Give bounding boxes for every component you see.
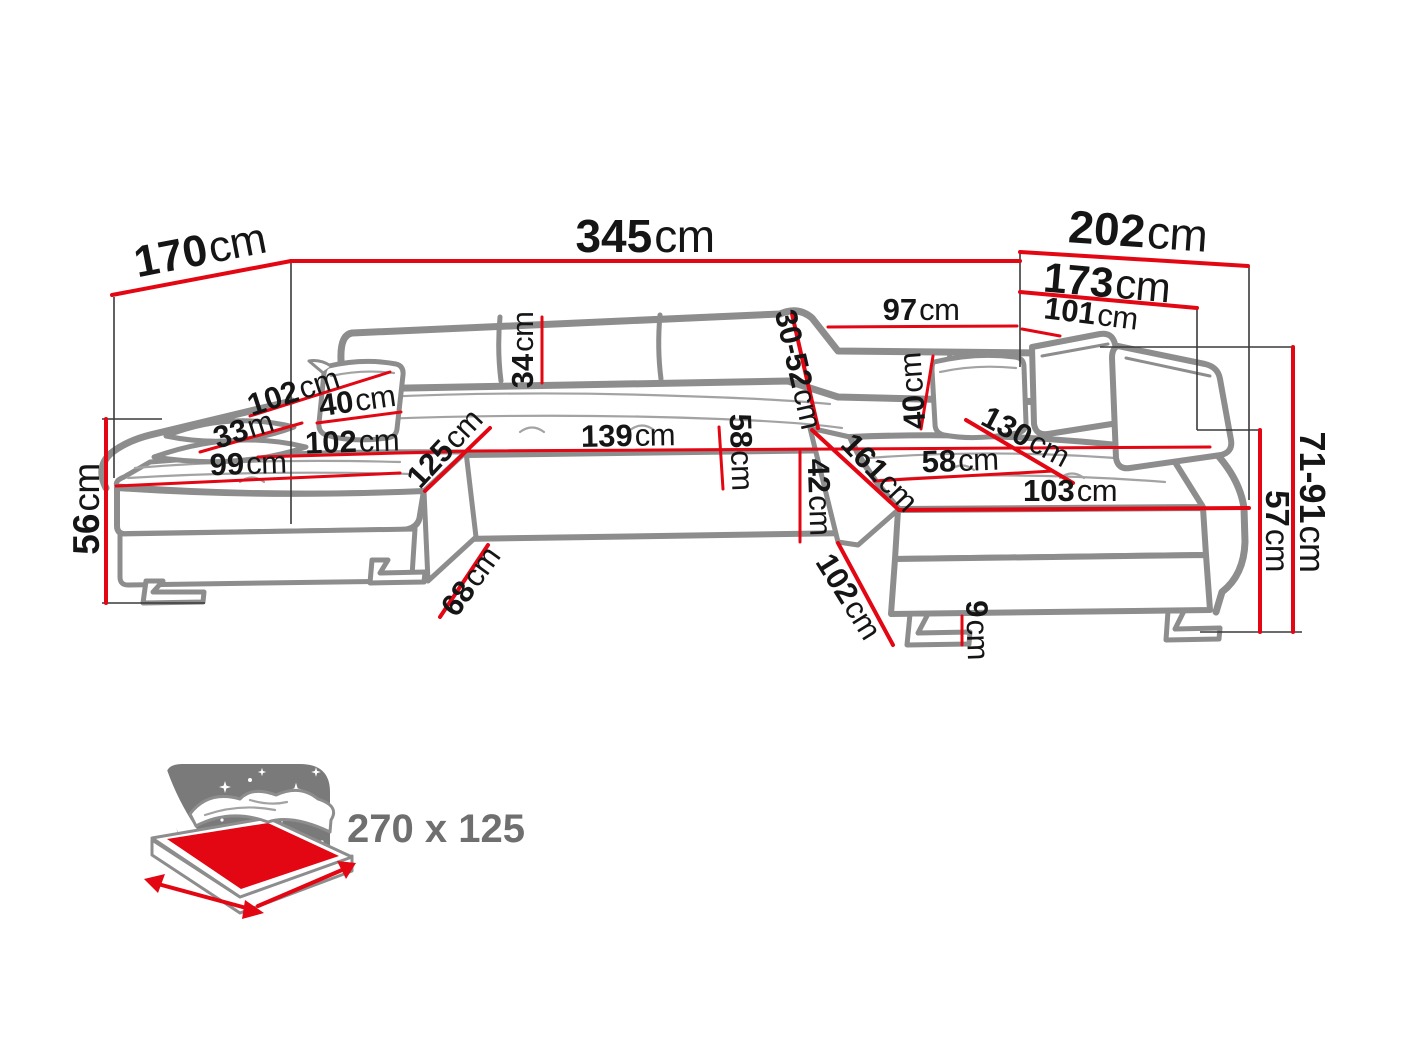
dim-label-backrest-height: 34cm: [505, 312, 540, 389]
dim-line-back-right-b: [1022, 329, 1060, 336]
backrest-seam: [659, 315, 661, 379]
dim-label-seat-mid-width: 139cm: [581, 417, 676, 454]
dim-label-well-right: 102cm: [809, 547, 889, 645]
dim-label-back-right-a: 97cm: [883, 292, 960, 327]
dim-line-chaise-right-width: [899, 508, 1249, 510]
backrest-seam: [499, 317, 501, 381]
dim-label-front-height: 42cm: [801, 458, 839, 536]
headrest-large: [1112, 346, 1231, 468]
dim-label-width-right: 202cm: [1067, 200, 1209, 262]
dim-label-height-right: 71-91cm: [1293, 431, 1334, 572]
dim-label-chaise-left-width: 99cm: [209, 444, 287, 482]
bed-size-label: 270 x 125: [347, 807, 525, 851]
dim-label-depth-left: 170cm: [130, 213, 270, 286]
dim-label-seat-mid-depth: 58cm: [723, 413, 761, 491]
dim-label-pillow-right: 40cm: [892, 351, 932, 430]
dim-label-seat-right-depth: 58cm: [921, 441, 999, 479]
dim-label-seat-left-depth: 102cm: [304, 422, 399, 460]
sleep-function-icon: 270 x 125: [144, 764, 525, 919]
dim-label-height-left: 56cm: [66, 463, 107, 554]
right-chaise-leg: [1166, 611, 1220, 640]
dim-label-chaise-right-width: 103cm: [1023, 473, 1117, 508]
dim-label-height-seat-back: 57cm: [1260, 490, 1297, 572]
mid-front-face: [461, 450, 853, 539]
dim-label-width-total: 345cm: [575, 210, 714, 262]
right-chaise-base: [891, 555, 1210, 614]
sofa-dimension-diagram: 170cm 345cm 202cm 173cm 97cm 101cm 102cm…: [0, 0, 1408, 1056]
right-chaise-front: [895, 508, 1206, 559]
dim-label-leg-height: 9cm: [959, 600, 996, 661]
